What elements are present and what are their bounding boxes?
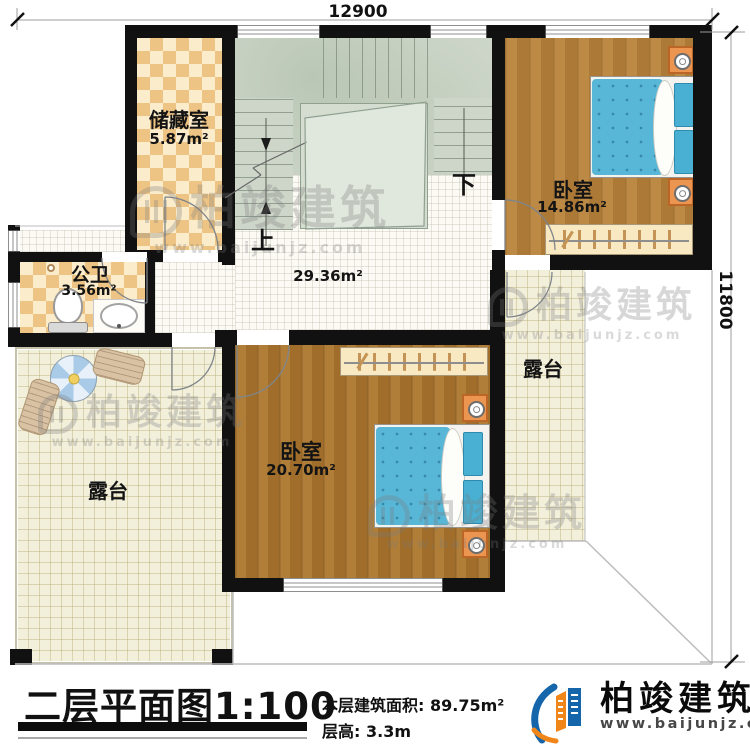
- title-underline: [18, 722, 307, 731]
- pillow: [463, 480, 483, 524]
- door-opening: [102, 252, 147, 262]
- floor-area-value: 89.75m²: [430, 696, 504, 715]
- nightstand: [668, 178, 694, 206]
- floor-area-label: 本层建筑面积:: [322, 696, 424, 715]
- title-underline-thin: [18, 737, 307, 739]
- terrace-post: [212, 649, 233, 665]
- dimension-top: 12900: [300, 2, 416, 22]
- stairs-down-label: 下: [444, 172, 484, 198]
- wall: [693, 25, 712, 270]
- footer: 二层平面图1:100 本层建筑面积: 89.75m² 层高: 3.3m 柏竣建筑…: [0, 668, 750, 745]
- sink-faucet: [117, 324, 121, 328]
- duvet: [376, 427, 450, 525]
- brand-block: 柏竣建筑 www.baijunjz.com: [600, 682, 750, 732]
- door-opening: [237, 330, 289, 345]
- baijun-logo-icon: [528, 680, 594, 744]
- floor-height-info: 层高: 3.3m: [322, 718, 411, 742]
- bed-sheet: [441, 428, 465, 526]
- terrace-post: [10, 649, 32, 665]
- storage-label: 储藏室: [119, 109, 239, 131]
- floor-height-value: 3.3m: [366, 722, 411, 741]
- lamp-icon: [674, 53, 691, 70]
- bedroom-top-area: 14.86m²: [512, 199, 632, 216]
- storage-area: 5.87m²: [119, 131, 239, 148]
- door-opening: [492, 200, 505, 250]
- window: [237, 25, 320, 38]
- stairs-landing: [300, 103, 428, 229]
- terrace-right-floor: [505, 270, 585, 541]
- door-opening: [172, 333, 215, 347]
- pillow: [674, 130, 694, 174]
- brand-name: 柏竣建筑: [600, 682, 750, 716]
- lamp-icon: [468, 537, 485, 554]
- floor-height-label: 层高:: [322, 722, 360, 741]
- lamp-icon: [674, 185, 691, 202]
- door-opening: [505, 255, 550, 270]
- stairs-upper-flight: [323, 38, 434, 98]
- wardrobe-bottom: [340, 347, 488, 376]
- stairs-right-flight: [434, 98, 492, 172]
- bedroom-bottom-area: 20.70m²: [241, 462, 361, 479]
- bed-bottom: [374, 424, 490, 528]
- floor-area-info: 本层建筑面积: 89.75m²: [322, 692, 504, 716]
- terrace-right-label: 露台: [483, 358, 603, 380]
- nightstand: [462, 530, 488, 558]
- toilet-tank: [48, 322, 88, 333]
- stairs-left-flight: [235, 98, 293, 230]
- bathroom-area: 3.56m²: [39, 284, 139, 299]
- window: [8, 282, 20, 328]
- window: [8, 230, 20, 252]
- window: [283, 578, 443, 592]
- bed-top: [590, 76, 694, 178]
- pillow: [674, 83, 694, 127]
- hall-floor-nook: [15, 230, 125, 252]
- wall: [490, 270, 505, 592]
- nightstand: [668, 46, 694, 74]
- dimension-right: 11800: [715, 258, 735, 342]
- wardrobe-top: [545, 224, 693, 255]
- nightstand: [462, 394, 488, 422]
- terrace-left-label: 露台: [48, 480, 168, 502]
- stairs-up-label: 上: [243, 228, 283, 254]
- floorplan-canvas: 柏竣建筑 www.baijunjz.com 柏竣建筑 www.baijunjz.…: [0, 0, 750, 745]
- pillow: [463, 432, 483, 476]
- brand-url: www.baijunjz.com: [600, 716, 750, 732]
- hall-area: 29.36m²: [268, 268, 388, 285]
- window: [545, 25, 650, 38]
- window: [430, 25, 487, 38]
- door-opening: [163, 250, 218, 262]
- lamp-icon: [468, 401, 485, 418]
- wall: [222, 330, 235, 592]
